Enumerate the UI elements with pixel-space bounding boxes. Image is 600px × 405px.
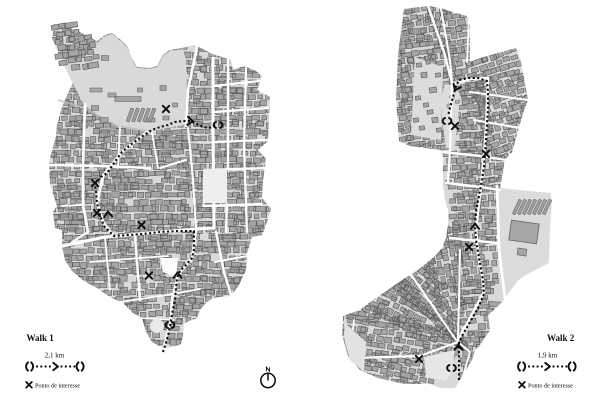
svg-text:Ponto de interesse: Ponto de interesse [528, 382, 573, 389]
svg-text:Ponto de interesse: Ponto de interesse [35, 382, 80, 389]
svg-text:Walk 2: Walk 2 [547, 333, 575, 343]
svg-text:1,9 km: 1,9 km [538, 352, 558, 360]
svg-text:Walk 1: Walk 1 [27, 333, 55, 343]
svg-text:2,1 km: 2,1 km [45, 352, 65, 360]
